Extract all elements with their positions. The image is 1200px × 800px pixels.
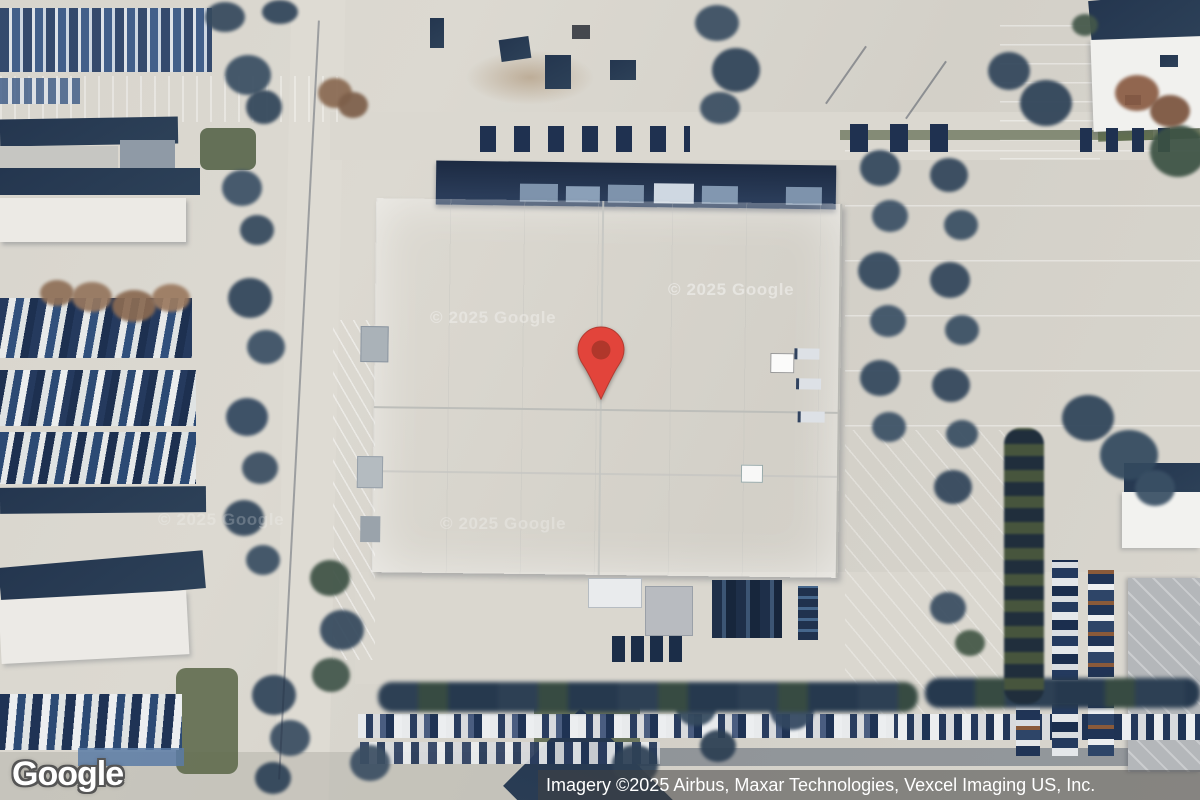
- tree-canopy: [112, 290, 156, 322]
- tree-canopy: [930, 592, 966, 624]
- roof-annex: [360, 326, 388, 362]
- tree-canopy: [930, 262, 970, 298]
- tree-canopy: [934, 470, 972, 504]
- tree-canopy: [247, 330, 285, 364]
- hvac-cluster: [712, 580, 782, 638]
- hedge-row: [378, 682, 918, 712]
- tree-canopy: [872, 200, 908, 232]
- car-column: [1088, 570, 1114, 756]
- tree-canopy: [1135, 470, 1175, 506]
- parking-lines-southeast: [845, 430, 1005, 720]
- tree-canopy: [700, 730, 736, 762]
- trailer-row: [0, 78, 80, 104]
- dock-trailer: [654, 183, 694, 203]
- tree-canopy: [350, 745, 390, 781]
- tree-canopy: [860, 150, 900, 186]
- pole-shadow: [825, 46, 867, 104]
- tree-canopy: [944, 210, 978, 240]
- tree-canopy: [312, 658, 350, 692]
- tree-canopy: [40, 280, 74, 306]
- tree-canopy: [1020, 80, 1072, 126]
- tree-canopy: [152, 284, 190, 312]
- pole-shadow: [905, 61, 947, 119]
- pin-body: [578, 327, 624, 399]
- tree-canopy: [240, 215, 274, 245]
- tree-canopy: [870, 305, 906, 337]
- rooftop-unit: [1160, 55, 1178, 67]
- parking-lines-east: [845, 150, 1200, 450]
- tree-canopy: [270, 720, 310, 756]
- tree-canopy: [858, 252, 900, 290]
- tree-canopy: [72, 282, 112, 312]
- hedge-with-cars: [1004, 428, 1044, 704]
- equipment: [610, 60, 636, 80]
- tree-canopy: [310, 560, 350, 596]
- equipment: [499, 36, 532, 62]
- rv-storage-row: [0, 370, 196, 426]
- shed-roof: [588, 578, 642, 608]
- pin-hole: [592, 341, 611, 360]
- imagery-watermark: © 2025 Google: [668, 280, 794, 300]
- tree-canopy: [255, 762, 291, 794]
- tree-canopy: [932, 368, 970, 402]
- tree-canopy: [262, 0, 298, 24]
- rooftop-unit: [770, 353, 794, 373]
- imagery-attribution: Imagery ©2025 Airbus, Maxar Technologies…: [538, 770, 1200, 800]
- tree-canopy: [695, 5, 739, 41]
- tree-canopy: [246, 545, 280, 575]
- equipment: [572, 25, 590, 39]
- tree-canopy: [1150, 95, 1190, 127]
- building-roof: [645, 586, 693, 636]
- tree-canopy: [872, 412, 906, 442]
- tree-canopy: [712, 48, 760, 92]
- tree-canopy: [222, 170, 262, 206]
- tree-canopy: [1150, 125, 1200, 177]
- tree-canopy: [242, 452, 278, 484]
- truck-row: [612, 636, 688, 662]
- map-canvas[interactable]: © 2025 Google © 2025 Google © 2025 Googl…: [0, 0, 1200, 800]
- google-logo[interactable]: Google: [12, 755, 123, 794]
- dock-truck: [796, 378, 821, 389]
- car-column: [1052, 560, 1078, 756]
- building-roof: [0, 168, 200, 195]
- tree-canopy: [955, 630, 985, 656]
- rv-storage-row: [0, 432, 196, 484]
- rooftop-unit: [741, 465, 763, 483]
- tree-canopy: [700, 92, 740, 124]
- building-roof: [1128, 578, 1200, 772]
- dock-truck: [794, 348, 819, 359]
- location-pin[interactable]: [577, 326, 625, 400]
- tree-canopy: [945, 315, 979, 345]
- dirt-patch: [465, 50, 595, 105]
- trailer-row: [0, 8, 212, 72]
- tree-canopy: [246, 90, 282, 124]
- dock-truck: [798, 411, 825, 422]
- roof-annex: [360, 516, 380, 542]
- tree-canopy: [860, 360, 900, 396]
- tree-canopy: [988, 52, 1030, 90]
- tree-canopy: [226, 398, 268, 436]
- roof-seam-horizontal: [374, 406, 838, 414]
- truck-row: [480, 126, 690, 152]
- tree-canopy: [252, 675, 296, 715]
- grass-patch: [200, 128, 256, 170]
- building-roof: [120, 140, 175, 168]
- tree-canopy: [1062, 395, 1114, 441]
- roof-seam-horizontal: [373, 470, 837, 478]
- car-row: [898, 714, 1200, 740]
- tree-canopy: [205, 2, 245, 32]
- hedge-row: [925, 678, 1200, 708]
- hvac-cluster: [798, 586, 818, 640]
- parking-lines-west-of-building: [333, 320, 375, 660]
- tree-canopy: [946, 420, 978, 448]
- tree-canopy: [1072, 14, 1098, 36]
- grass-patch: [176, 668, 238, 774]
- truck-row: [850, 124, 970, 152]
- imagery-watermark: © 2025 Google: [158, 510, 284, 530]
- tree-canopy: [338, 92, 368, 118]
- building-roof: [0, 198, 186, 242]
- rv-storage-row: [0, 694, 182, 750]
- building-roof: [0, 590, 189, 664]
- equipment: [545, 55, 571, 89]
- car-row: [358, 714, 918, 738]
- tree-canopy: [320, 610, 364, 650]
- tree-canopy: [228, 278, 272, 318]
- tree-canopy: [930, 158, 968, 192]
- equipment: [430, 18, 444, 48]
- imagery-watermark: © 2025 Google: [430, 308, 556, 328]
- building-roof: [0, 146, 118, 168]
- imagery-watermark: © 2025 Google: [440, 514, 566, 534]
- tree-canopy: [225, 55, 271, 95]
- roof-annex: [357, 456, 383, 488]
